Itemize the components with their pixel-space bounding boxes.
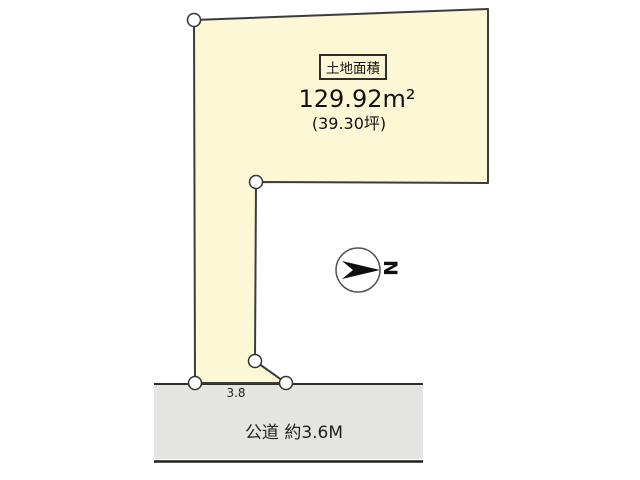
vertex-marker [188, 14, 201, 27]
vertex-marker [250, 176, 263, 189]
vertex-marker [249, 355, 262, 368]
area-title-box: 土地面積 [319, 54, 387, 80]
area-value: 129.92m² [277, 85, 437, 113]
area-tsubo-value: (39.30坪) [279, 110, 419, 134]
road-label: 公道 約3.6M [154, 418, 434, 443]
land-plot-diagram: 土地面積 129.92m² (39.30坪) N 3.8 公道 約3.6M [0, 0, 640, 480]
vertex-marker [280, 377, 293, 390]
vertex-marker [189, 377, 202, 390]
north-label: N [379, 257, 401, 279]
frontage-dimension: 3.8 [221, 386, 251, 400]
